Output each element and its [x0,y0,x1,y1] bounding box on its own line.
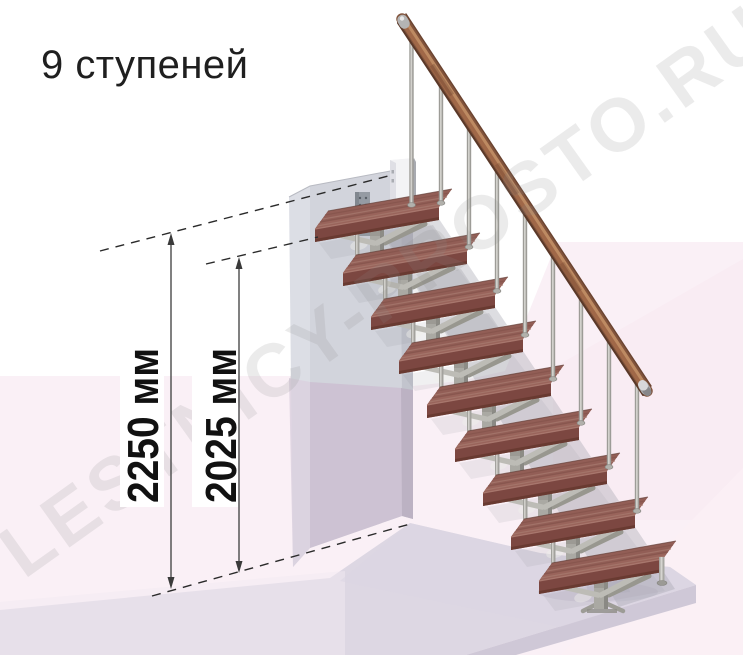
svg-text:9 ступеней: 9 ступеней [41,43,248,87]
svg-text:2250 мм: 2250 мм [119,348,168,503]
svg-text:2025 мм: 2025 мм [197,348,246,503]
